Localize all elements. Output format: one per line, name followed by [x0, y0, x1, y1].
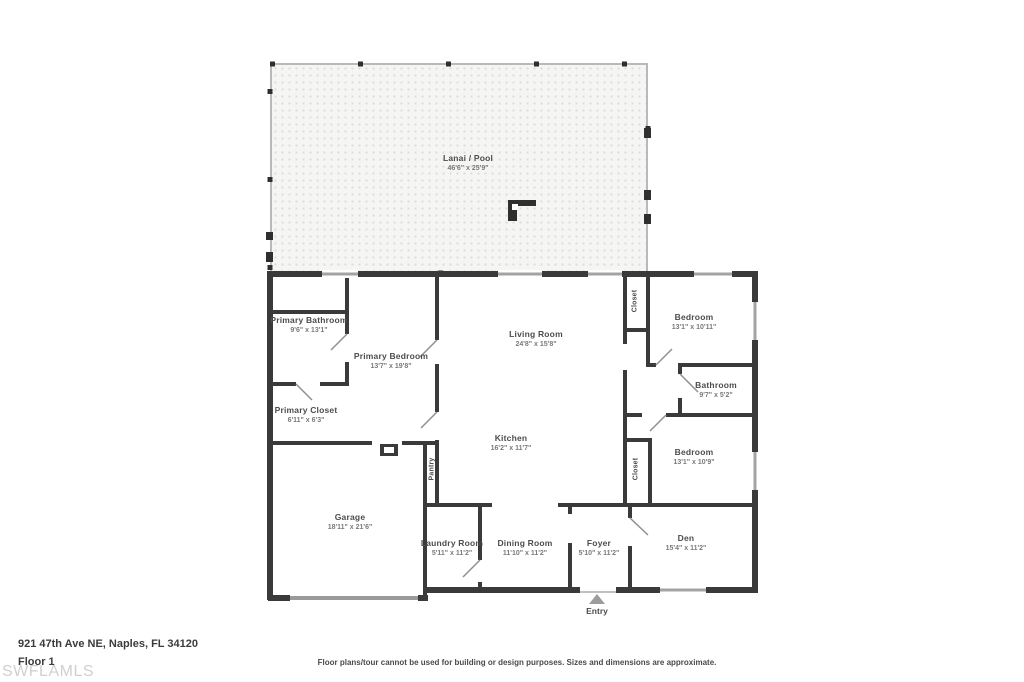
window-underlays: [290, 274, 755, 598]
exterior-walls: [267, 271, 758, 600]
entry-arrow-icon: [589, 594, 605, 604]
floor-plan-page: Lanai / Pool 46'6" x 25'9" Primary Bathr…: [0, 0, 1024, 682]
entry-label: Entry: [586, 606, 608, 616]
disclaimer-text: Floor plans/tour cannot be used for buil…: [318, 658, 717, 667]
lanai-rail-ticks: [266, 128, 651, 262]
lanai-posts: [270, 64, 648, 273]
door-swings: [296, 334, 698, 577]
windows: [322, 274, 755, 590]
property-address: 921 47th Ave NE, Naples, FL 34120: [18, 638, 198, 650]
garage-step: [380, 444, 398, 456]
mls-watermark: SWFLAMLS: [2, 663, 94, 681]
lanai-structure-icon: [508, 200, 536, 221]
interior-walls: [268, 272, 757, 600]
floorplan-walls-drawing: [0, 0, 1024, 682]
